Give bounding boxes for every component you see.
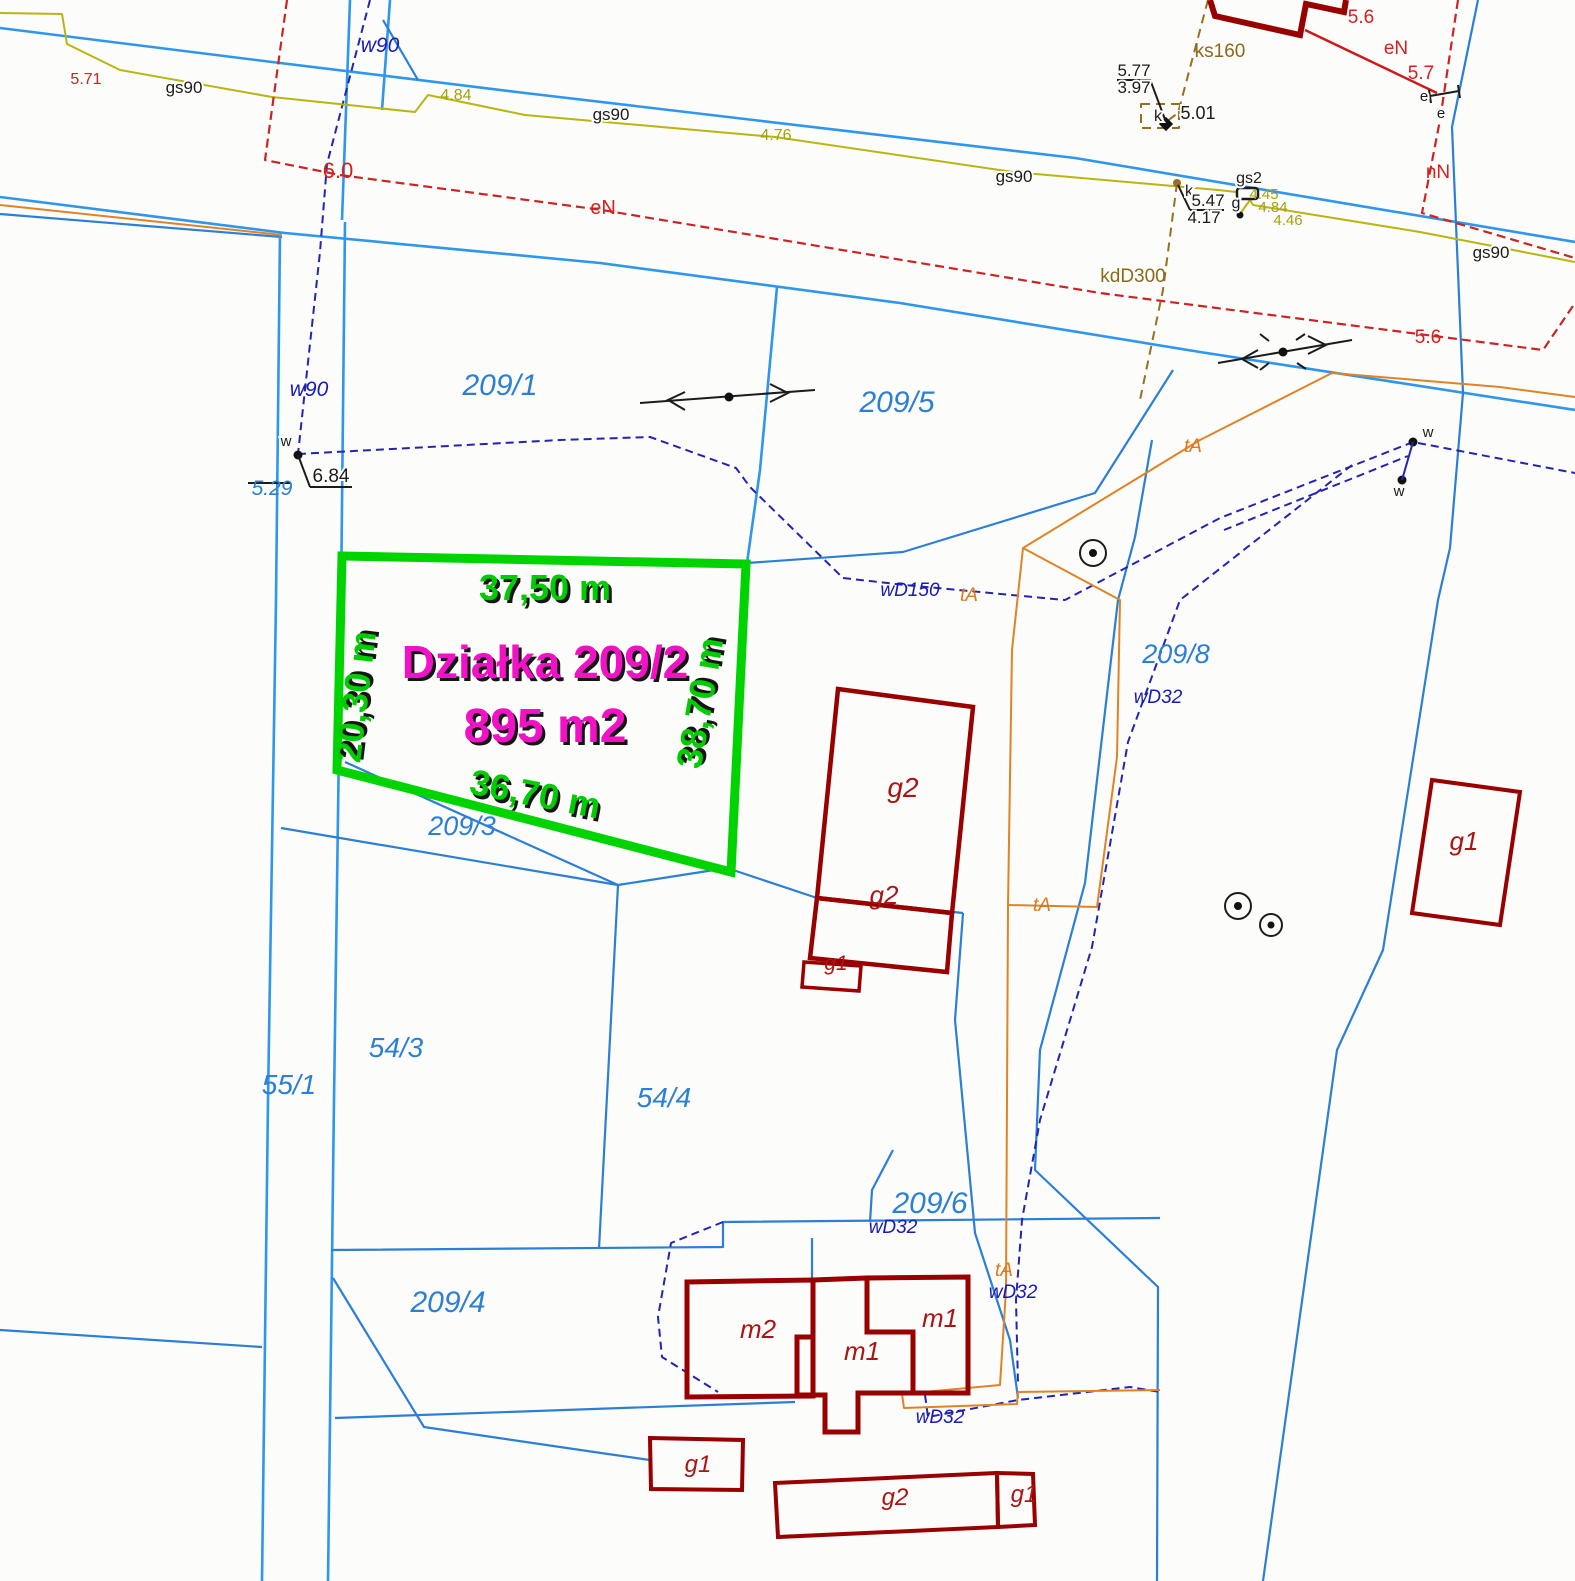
map-label-bld-m1-center: m1 bbox=[844, 1336, 880, 1366]
map-label-w-node-c: w bbox=[1393, 483, 1405, 500]
map-label-elev-5-01: 5.01 bbox=[1180, 103, 1215, 123]
map-label-parcel-209-5: 209/5 bbox=[858, 386, 934, 419]
gas-node-dot bbox=[1237, 212, 1244, 219]
sewer-node-dot bbox=[1173, 179, 1181, 187]
map-label-wd32-d: wD32 bbox=[916, 1407, 965, 1428]
map-label-w-node-b: w bbox=[1422, 424, 1434, 441]
map-label-w90-mid: w90 bbox=[290, 378, 329, 401]
map-label-gs90-c: gs90 bbox=[996, 167, 1033, 186]
well-dot-2 bbox=[1234, 902, 1242, 910]
map-background bbox=[0, 0, 1575, 1581]
map-label-well-k-a: k bbox=[1154, 108, 1163, 125]
map-label-bld-g1-right: g1 bbox=[1450, 826, 1479, 856]
map-label-power-6-0: 6.0 bbox=[323, 158, 354, 183]
map-label-parcel-54-3: 54/3 bbox=[369, 1032, 424, 1063]
map-label-gas-g: g bbox=[1232, 195, 1241, 212]
map-label-elev-3-97: 3.97 bbox=[1117, 78, 1150, 97]
map-label-bld-g2-long: g2 bbox=[882, 1484, 909, 1511]
map-label-gs90-b: gs90 bbox=[593, 105, 630, 124]
map-label-elev-4-17: 4.17 bbox=[1187, 208, 1220, 227]
map-label-bld-m2: m2 bbox=[740, 1314, 777, 1344]
map-label-bld-g1-bottom: g1 bbox=[685, 1451, 712, 1478]
map-label-wd150: wD150 bbox=[880, 580, 940, 601]
map-label-ta-d: tA bbox=[995, 1260, 1013, 1281]
map-label-bld-g1-end: g1 bbox=[1011, 1481, 1038, 1508]
map-label-w-node-a: w bbox=[280, 433, 292, 450]
map-label-parcel-209-1: 209/1 bbox=[461, 369, 537, 402]
map-label-gas-4-84-a: 4.84 bbox=[440, 87, 471, 104]
map-label-power-en-a: eN bbox=[590, 197, 616, 219]
map-label-parcel-55-1: 55/1 bbox=[262, 1069, 317, 1100]
map-label-gas-4-46: 4.46 bbox=[1273, 212, 1302, 229]
map-label-elev-5-29: 5.29 bbox=[252, 477, 293, 500]
map-label-power-en-b: eN bbox=[1384, 38, 1408, 59]
map-label-e-node-a: e bbox=[1420, 88, 1428, 105]
map-label-parcel-54-4: 54/4 bbox=[637, 1082, 692, 1113]
cadastral-map-svg: 37,50 m20,30 m38,70 m36,70 mDziałka 209/… bbox=[0, 0, 1575, 1581]
map-label-plot-area: 895 m2 bbox=[464, 700, 627, 753]
map-label-bld-g2-upper: g2 bbox=[887, 772, 919, 803]
map-label-wd32-a: wD32 bbox=[1134, 687, 1183, 708]
map-label-power-5-7: 5.7 bbox=[1408, 63, 1434, 84]
culvert-dot bbox=[725, 393, 734, 402]
map-label-bld-g1-small: g1 bbox=[824, 952, 847, 975]
map-label-gas-gs2: gs2 bbox=[1236, 170, 1262, 187]
map-label-power-nn: nN bbox=[1426, 162, 1450, 183]
map-label-ta-a: tA bbox=[1184, 436, 1202, 457]
map-label-sewer-ks160: ks160 bbox=[1195, 41, 1246, 62]
map-label-e-node-b: e bbox=[1437, 105, 1445, 122]
map-label-dim-top: 37,50 m bbox=[479, 567, 611, 608]
map-label-power-5-6-b: 5.6 bbox=[1415, 327, 1441, 348]
map-label-gs90-d: gs90 bbox=[1473, 243, 1510, 262]
map-label-power-5-6-top: 5.6 bbox=[1348, 7, 1374, 28]
map-label-parcel-209-4: 209/4 bbox=[409, 1286, 485, 1319]
map-label-power-5-71: 5.71 bbox=[70, 71, 101, 88]
map-label-plot-title: Działka 209/2 bbox=[402, 636, 688, 688]
map-label-bld-m1-right: m1 bbox=[922, 1303, 958, 1333]
well-dot-3 bbox=[1268, 922, 1275, 929]
map-label-parcel-209-6: 209/6 bbox=[891, 1187, 967, 1220]
culvert-east-dot bbox=[1279, 348, 1288, 357]
map-label-w90-north: w90 bbox=[361, 34, 400, 57]
map-label-gas-4-76: 4.76 bbox=[760, 127, 791, 144]
map-label-parcel-209-8: 209/8 bbox=[1141, 639, 1210, 669]
map-label-elev-6-84: 6.84 bbox=[313, 466, 350, 487]
cadastral-map: 37,50 m20,30 m38,70 m36,70 mDziałka 209/… bbox=[0, 0, 1575, 1581]
well-dot-1 bbox=[1089, 549, 1097, 557]
map-label-parcel-209-3: 209/3 bbox=[427, 811, 496, 841]
map-label-wd32-c: wD32 bbox=[989, 1282, 1038, 1303]
map-label-sewer-kdd300: kdD300 bbox=[1100, 266, 1166, 287]
map-label-wd32-b: wD32 bbox=[869, 1217, 918, 1238]
map-label-ta-c: tA bbox=[1033, 895, 1051, 916]
map-label-gs90-a: gs90 bbox=[166, 78, 203, 97]
map-label-bld-g2-lower: g2 bbox=[870, 880, 899, 910]
map-label-ta-b: tA bbox=[960, 585, 978, 606]
